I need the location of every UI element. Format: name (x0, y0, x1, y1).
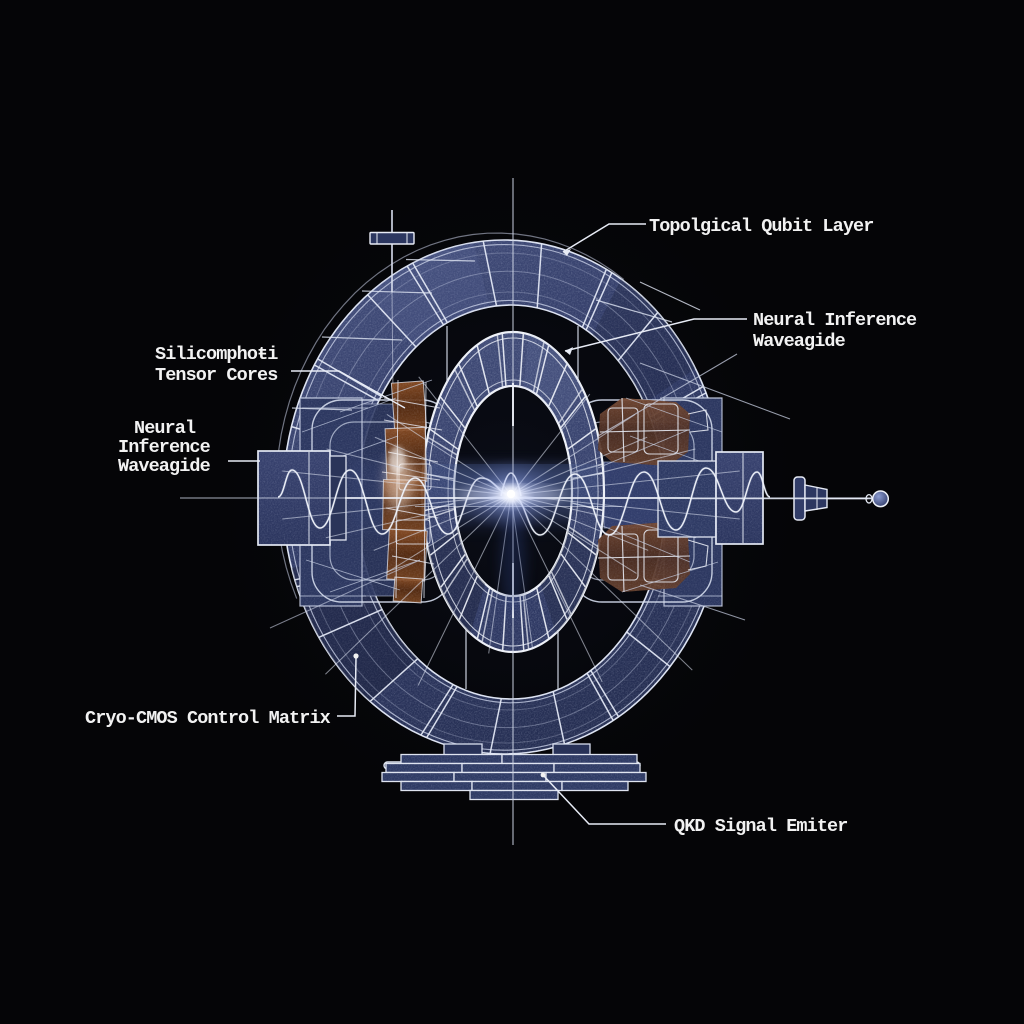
svg-text:Silicomphoŧi: Silicomphoŧi (155, 344, 278, 365)
svg-text:Neural: Neural (134, 418, 196, 439)
svg-text:Waveagide: Waveagide (118, 456, 211, 477)
svg-text:Cryo-CMOS Control Matrix: Cryo-CMOS Control Matrix (85, 708, 331, 729)
svg-text:QKD Signal Emiter: QKD Signal Emiter (674, 816, 847, 837)
svg-text:Tensor Cores: Tensor Cores (155, 365, 277, 386)
svg-text:Neural Inference: Neural Inference (753, 310, 917, 331)
svg-text:Inference: Inference (118, 437, 211, 458)
svg-text:Topolgical Qubit Layer: Topolgical Qubit Layer (649, 216, 873, 237)
svg-text:Waveagide: Waveagide (753, 331, 846, 352)
